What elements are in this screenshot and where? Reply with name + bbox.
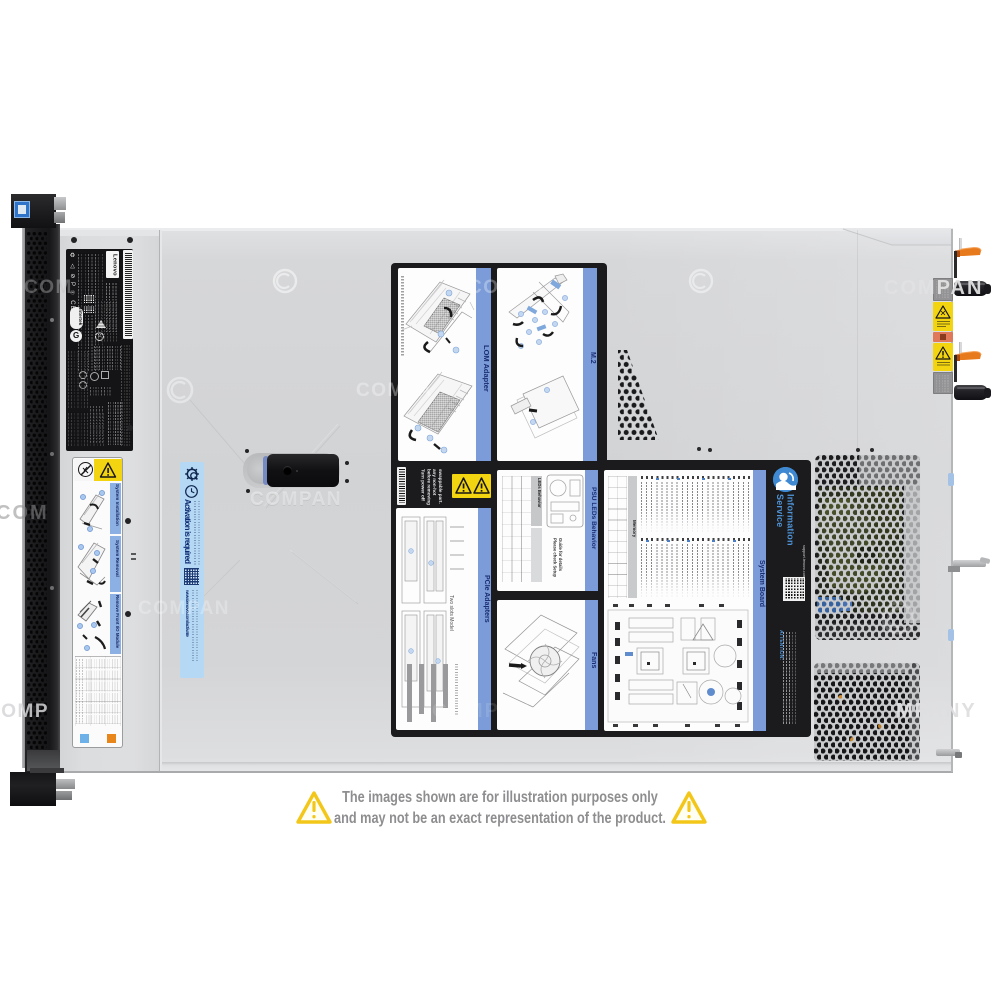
- svg-text:Two slots Model: Two slots Model: [448, 595, 454, 631]
